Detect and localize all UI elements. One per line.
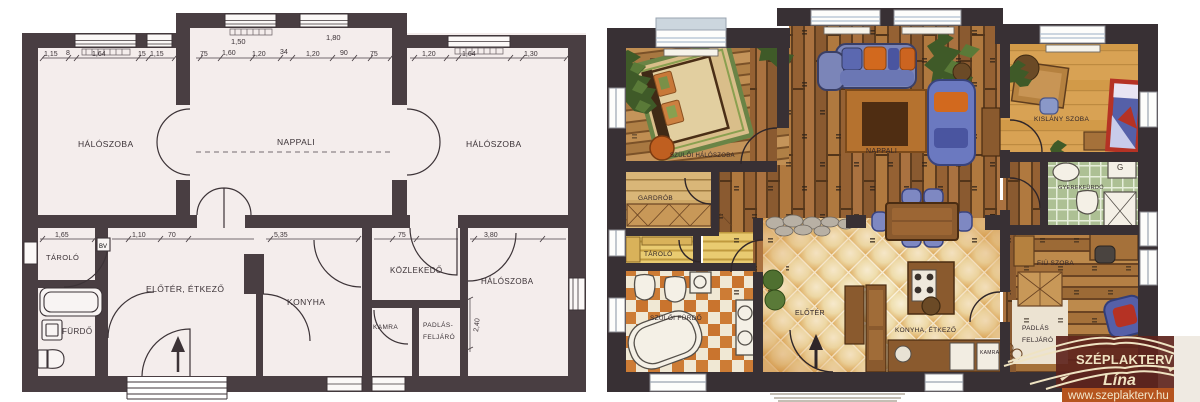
- svg-text:KAMRA: KAMRA: [373, 324, 398, 331]
- svg-text:1,20: 1,20: [306, 51, 320, 58]
- svg-text:75: 75: [370, 51, 378, 58]
- svg-text:ELŐTÉR: ELŐTÉR: [795, 308, 825, 317]
- svg-text:FELJÁRÓ: FELJÁRÓ: [1022, 335, 1053, 344]
- svg-text:3,80: 3,80: [484, 232, 498, 239]
- svg-text:34: 34: [280, 49, 288, 56]
- svg-text:PADLÁS: PADLÁS: [1022, 323, 1049, 332]
- svg-text:90: 90: [340, 50, 348, 57]
- svg-text:8: 8: [66, 50, 70, 57]
- svg-text:75: 75: [200, 51, 208, 58]
- svg-text:PADLÁS-: PADLÁS-: [423, 320, 453, 329]
- svg-text:KONYHA, ÉTKEZŐ: KONYHA, ÉTKEZŐ: [895, 325, 956, 334]
- svg-text:1,64: 1,64: [92, 51, 106, 58]
- svg-text:www.szeplakterv.hu: www.szeplakterv.hu: [1067, 390, 1169, 402]
- svg-text:HÁLÓSZOBA: HÁLÓSZOBA: [481, 277, 534, 286]
- svg-text:1,50: 1,50: [231, 37, 246, 46]
- svg-text:KÖZLEKEDŐ: KÖZLEKEDŐ: [390, 266, 443, 275]
- svg-text:1,10: 1,10: [132, 232, 146, 239]
- svg-text:1,15: 1,15: [150, 51, 164, 58]
- svg-text:GYEREKFÜRDŐ: GYEREKFÜRDŐ: [1058, 184, 1104, 191]
- svg-text:1,20: 1,20: [252, 51, 266, 58]
- svg-text:BV: BV: [99, 244, 107, 250]
- svg-text:Lína: Lína: [1103, 372, 1136, 389]
- svg-text:5,35: 5,35: [274, 232, 288, 239]
- svg-text:1,60: 1,60: [222, 50, 236, 57]
- svg-text:1,65: 1,65: [55, 232, 69, 239]
- svg-text:SZÜLŐI FÜRDŐ: SZÜLŐI FÜRDŐ: [650, 313, 702, 322]
- svg-text:75: 75: [398, 232, 406, 239]
- svg-text:HÁLÓSZOBA: HÁLÓSZOBA: [78, 139, 134, 149]
- svg-text:1,64: 1,64: [462, 51, 476, 58]
- svg-text:FELJÁRÓ: FELJÁRÓ: [423, 332, 455, 341]
- svg-text:HÁLÓSZOBA: HÁLÓSZOBA: [466, 139, 522, 149]
- svg-text:SZÉPLAKTERV: SZÉPLAKTERV: [1076, 352, 1173, 367]
- svg-text:70: 70: [168, 232, 176, 239]
- svg-text:KISLÁNY SZOBA: KISLÁNY SZOBA: [1034, 114, 1089, 123]
- svg-text:KONYHA: KONYHA: [287, 297, 325, 307]
- svg-text:FÜRDŐ: FÜRDŐ: [62, 327, 92, 336]
- svg-text:1,20: 1,20: [422, 51, 436, 58]
- svg-text:GARDRÓB: GARDRÓB: [638, 193, 673, 202]
- svg-text:FIÚ SZOBA: FIÚ SZOBA: [1037, 258, 1074, 267]
- svg-text:1,15: 1,15: [44, 51, 58, 58]
- svg-text:TÁROLÓ: TÁROLÓ: [644, 249, 673, 258]
- svg-text:NAPPALI: NAPPALI: [866, 148, 897, 155]
- svg-text:1,30: 1,30: [524, 51, 538, 58]
- svg-text:G: G: [1117, 163, 1123, 172]
- svg-text:NAPPALI: NAPPALI: [277, 137, 315, 147]
- svg-text:KAMRA: KAMRA: [980, 350, 1000, 356]
- svg-text:TÁROLÓ: TÁROLÓ: [46, 253, 79, 262]
- svg-text:1,80: 1,80: [326, 33, 341, 42]
- svg-text:15: 15: [138, 51, 146, 58]
- svg-text:SZÜLŐI HÁLÓSZOBA: SZÜLŐI HÁLÓSZOBA: [670, 152, 735, 159]
- svg-text:ELŐTÉR, ÉTKEZŐ: ELŐTÉR, ÉTKEZŐ: [146, 284, 224, 294]
